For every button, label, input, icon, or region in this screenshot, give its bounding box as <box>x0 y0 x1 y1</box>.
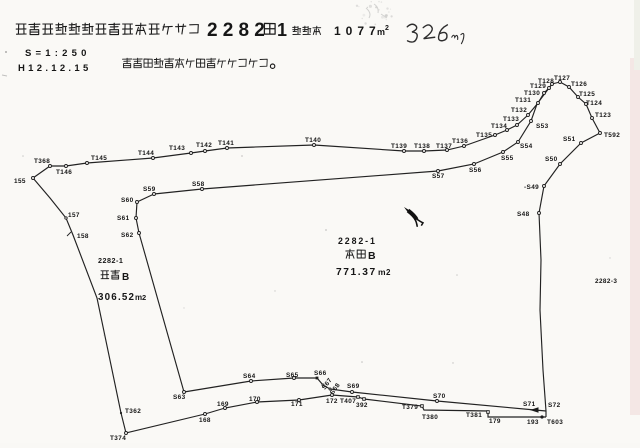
svg-text:T134: T134 <box>491 123 507 130</box>
svg-text:S56: S56 <box>469 167 482 174</box>
svg-text:S63: S63 <box>173 394 186 401</box>
svg-text:T374: T374 <box>110 435 126 442</box>
svg-text:2282: 2282 <box>207 20 270 41</box>
svg-text:S60: S60 <box>121 197 134 204</box>
svg-text:T131: T131 <box>515 97 531 104</box>
svg-text:155: 155 <box>14 178 26 185</box>
svg-text:S50: S50 <box>545 156 558 163</box>
svg-text:T126: T126 <box>571 81 587 88</box>
svg-text:S71: S71 <box>523 401 536 408</box>
svg-text:158: 158 <box>77 233 89 240</box>
svg-text:T123: T123 <box>595 112 611 119</box>
svg-text:179: 179 <box>489 418 501 425</box>
svg-text:392: 392 <box>356 402 368 409</box>
svg-text:193: 193 <box>527 419 539 426</box>
svg-text:S53: S53 <box>536 123 549 130</box>
svg-text:T135: T135 <box>476 132 492 139</box>
svg-text:306.52: 306.52 <box>98 292 135 303</box>
svg-text:T139: T139 <box>391 143 407 150</box>
svg-text:T144: T144 <box>138 150 154 157</box>
svg-text:S64: S64 <box>243 373 256 380</box>
svg-text:T140: T140 <box>305 137 321 144</box>
svg-text:S48: S48 <box>517 211 530 218</box>
svg-text:T136: T136 <box>452 138 468 145</box>
svg-text:170: 170 <box>249 396 261 403</box>
svg-text:m: m <box>377 27 385 37</box>
svg-text:2: 2 <box>142 293 146 302</box>
svg-text:771.37: 771.37 <box>336 267 377 278</box>
svg-text:S61: S61 <box>117 215 130 222</box>
svg-text:S55: S55 <box>501 155 514 162</box>
svg-text:T603: T603 <box>547 419 563 426</box>
svg-text:T142: T142 <box>196 142 212 149</box>
svg-text:S66: S66 <box>314 370 327 377</box>
svg-text:S62: S62 <box>121 232 134 239</box>
svg-text:T146: T146 <box>56 169 72 176</box>
svg-text:T127: T127 <box>554 75 570 82</box>
svg-text:S58: S58 <box>192 181 205 188</box>
svg-text:171: 171 <box>291 401 303 408</box>
svg-text:2282-1: 2282-1 <box>98 256 123 265</box>
svg-text:-S49: -S49 <box>524 184 539 191</box>
svg-text:S69: S69 <box>347 383 360 390</box>
svg-text:S54: S54 <box>520 143 533 150</box>
svg-text:S70: S70 <box>433 393 446 400</box>
svg-text:T407: T407 <box>340 398 356 405</box>
svg-text:T379: T379 <box>402 404 418 411</box>
svg-text:2282-3: 2282-3 <box>595 278 617 285</box>
svg-text:T133: T133 <box>503 116 519 123</box>
svg-text:T132: T132 <box>511 107 527 114</box>
svg-text:S=1:250: S=1:250 <box>25 48 91 59</box>
svg-text:S59: S59 <box>143 186 156 193</box>
svg-text:2282-1: 2282-1 <box>338 236 377 246</box>
svg-text:S51: S51 <box>563 136 576 143</box>
svg-text:T592: T592 <box>604 132 620 139</box>
svg-text:169: 169 <box>217 401 229 408</box>
svg-text:m: m <box>378 267 386 277</box>
svg-text:1: 1 <box>277 20 287 40</box>
svg-text:168: 168 <box>199 417 211 424</box>
svg-text:T137: T137 <box>436 143 452 150</box>
svg-text:172: 172 <box>326 398 338 405</box>
svg-text:S57: S57 <box>432 173 445 180</box>
svg-text:T125: T125 <box>579 91 595 98</box>
svg-text:T128: T128 <box>538 78 554 85</box>
svg-text:T130: T130 <box>524 90 540 97</box>
svg-text:H12.12.15: H12.12.15 <box>18 63 92 74</box>
svg-text:T145: T145 <box>91 155 107 162</box>
svg-text:B: B <box>368 250 376 262</box>
svg-text:T362: T362 <box>125 408 141 415</box>
svg-text:157: 157 <box>68 212 80 219</box>
svg-text:S72: S72 <box>548 402 561 409</box>
svg-text:T380: T380 <box>422 414 438 421</box>
svg-text:S65: S65 <box>286 372 299 379</box>
svg-text:2: 2 <box>385 25 389 32</box>
svg-text:1077: 1077 <box>334 24 381 38</box>
svg-text:T138: T138 <box>414 143 430 150</box>
svg-text:T381: T381 <box>466 412 482 419</box>
svg-text:T124: T124 <box>586 100 602 107</box>
svg-text:T368: T368 <box>34 158 50 165</box>
svg-text:T141: T141 <box>218 140 234 147</box>
svg-text:T143: T143 <box>169 145 185 152</box>
svg-text:2: 2 <box>386 268 391 277</box>
svg-text:B: B <box>122 272 129 283</box>
